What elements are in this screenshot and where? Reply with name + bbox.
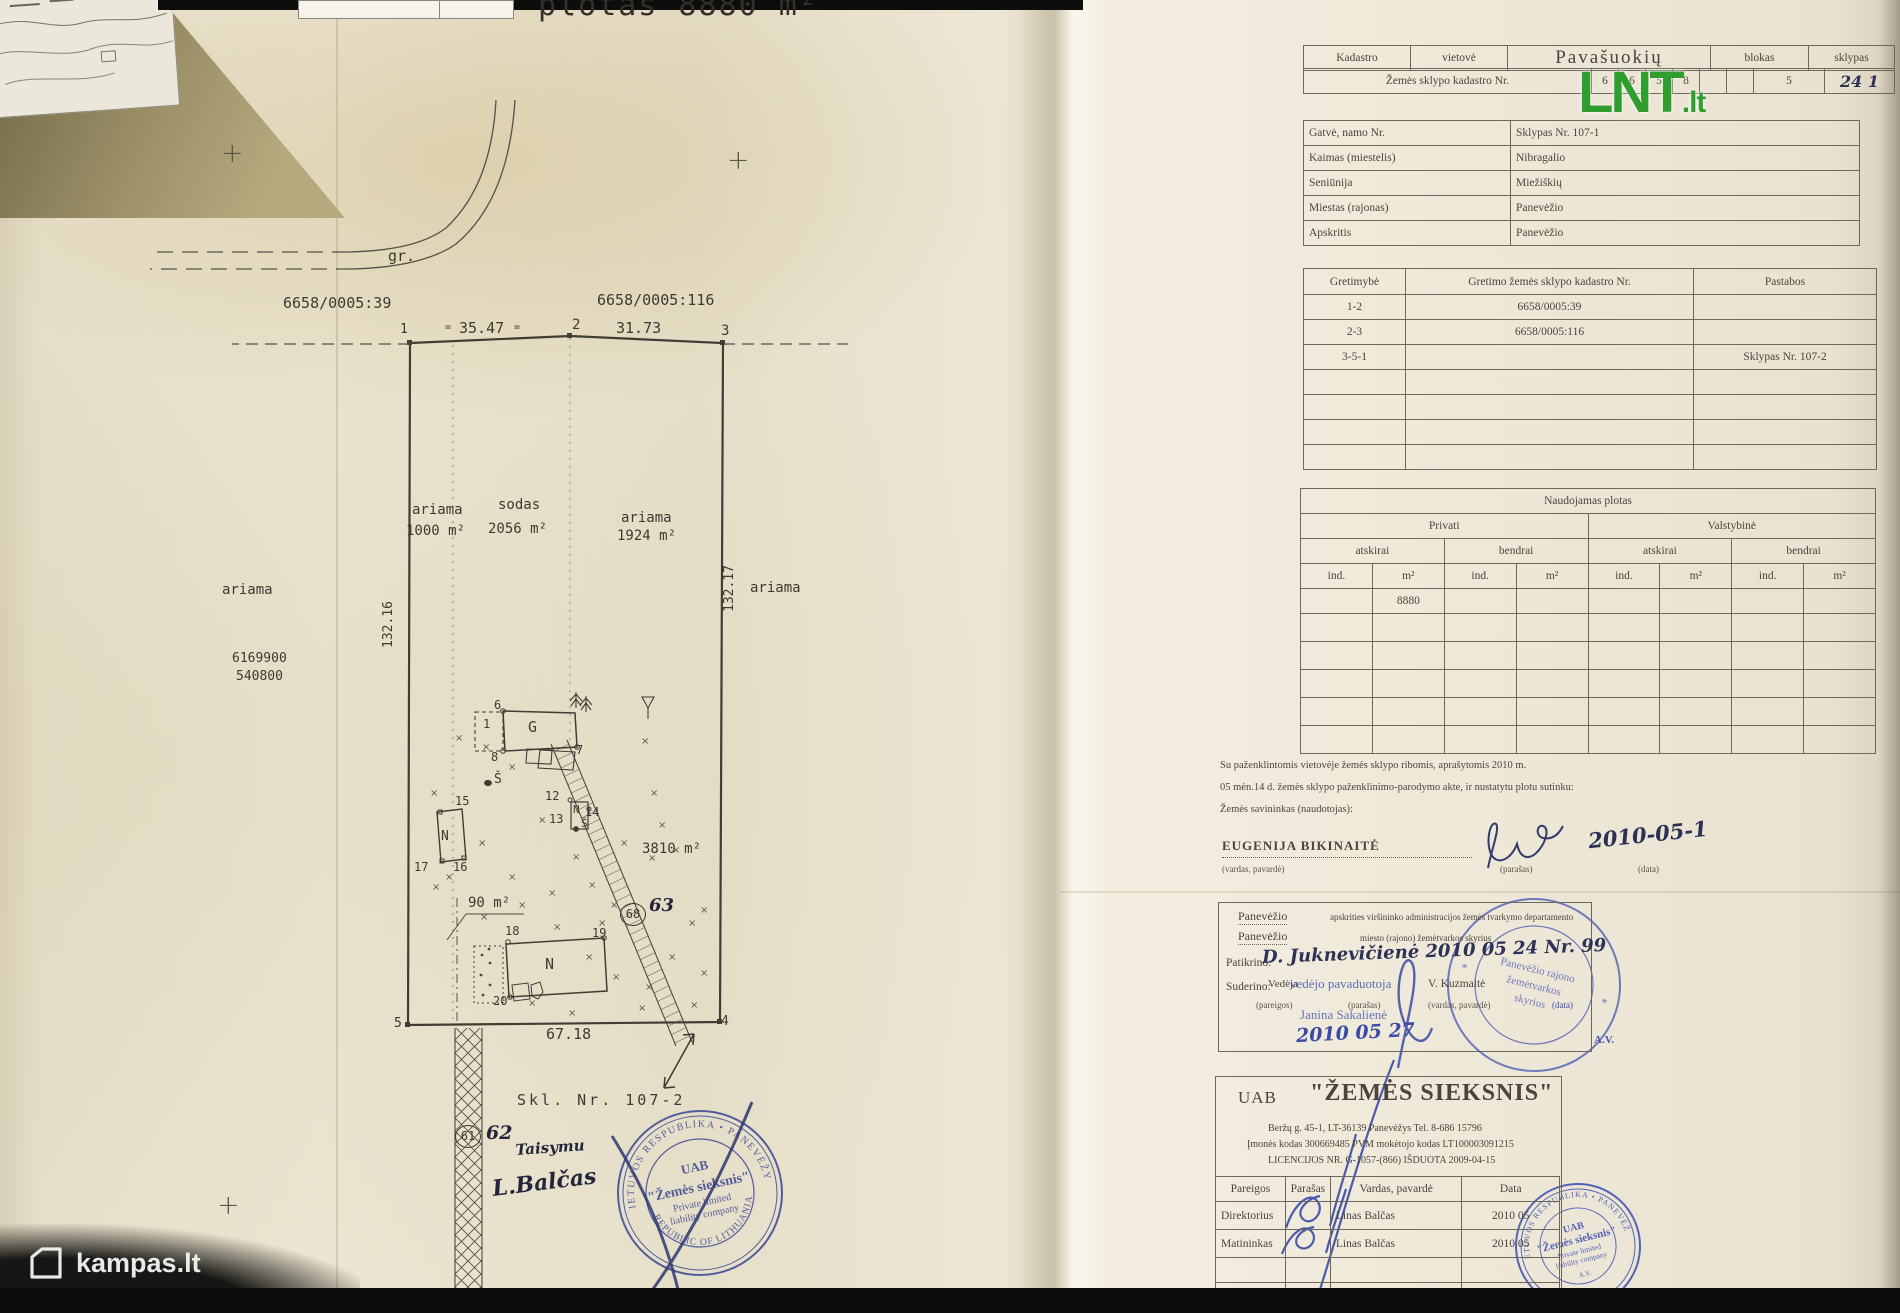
rect-el — [567, 333, 572, 338]
loc-value: Miežiškių — [1511, 171, 1860, 196]
tbody-el: Naudojamas plotas Privati Valstybinė ats… — [1301, 489, 1876, 754]
loc-label: Apskritis — [1304, 221, 1511, 246]
dotted-leader — [1222, 847, 1472, 858]
approval-skyrius-prefix: Panevėžio — [1238, 929, 1287, 945]
rect-el — [405, 1022, 410, 1027]
naud-col: ind. — [1301, 564, 1373, 589]
tree-symbols — [570, 692, 592, 712]
scan-artifact-box — [298, 0, 514, 19]
vietove-label: vietovė — [1411, 46, 1508, 71]
road-lines — [150, 100, 515, 269]
tr-el: 8880 — [1301, 589, 1876, 614]
location-table: Gatvė, namo Nr.Sklypas Nr. 107-1 Kaimas … — [1303, 120, 1860, 246]
empty-row — [1304, 420, 1877, 445]
path-el — [570, 692, 582, 708]
tr-el: ApskritisPanevėžio — [1304, 221, 1860, 246]
tbody-el: Gretimybė Gretimo žemės sklypo kadastro … — [1304, 269, 1877, 470]
empty-cell — [1304, 395, 1406, 420]
company-codes: Įmonės kodas 300669485 PVM mokėtojo koda… — [1247, 1139, 1514, 1150]
consent-line2: 05 mėn.14 d. žemės sklypo paženklinimo-p… — [1220, 782, 1574, 793]
comp-sig — [1285, 1230, 1330, 1258]
naud-col: m² — [1372, 564, 1444, 589]
polygon-el — [512, 983, 530, 1001]
photo-bottom-edge — [0, 1288, 1900, 1313]
naud-col: m² — [1804, 564, 1876, 589]
approval-dept: apskrities viršininko administracijos že… — [1330, 912, 1573, 922]
comp-name: Linas Balčas — [1330, 1230, 1462, 1258]
empty-row — [1304, 395, 1877, 420]
naud-cell — [1301, 589, 1373, 614]
empty-cell — [1444, 670, 1516, 698]
empty-cell — [1301, 642, 1373, 670]
empty-cell — [1804, 670, 1876, 698]
empty-cell — [1301, 726, 1373, 754]
cap-data: (data) — [1552, 1000, 1573, 1010]
empty-cell — [1444, 642, 1516, 670]
empty-cell — [1660, 726, 1732, 754]
empty-cell — [1588, 698, 1660, 726]
comp-role: Matininkas — [1216, 1230, 1286, 1258]
empty-cell — [1804, 614, 1876, 642]
empty-cell — [1372, 642, 1444, 670]
tr-el: 3-5-1Sklypas Nr. 107-2 — [1304, 345, 1877, 370]
naud-cell — [1444, 589, 1516, 614]
empty-cell — [1372, 670, 1444, 698]
gret-cell: Sklypas Nr. 107-2 — [1694, 345, 1877, 370]
cap-vardas: (vardas, pavardė) — [1428, 1000, 1490, 1010]
path-el — [551, 744, 676, 1046]
naud-cell — [1732, 589, 1804, 614]
circle-el — [489, 962, 492, 965]
naud-col: ind. — [1444, 564, 1516, 589]
empty-row — [1301, 642, 1876, 670]
comp-header: Vardas, pavardė — [1330, 1177, 1462, 1202]
sklypas-label: sklypas — [1809, 46, 1895, 71]
scanned-cadastral-document: LIETUVOS RESPUBLIKA • PANEVĖŽYS REPUBLIC… — [0, 0, 1900, 1313]
empty-row — [1216, 1258, 1560, 1283]
comp-date: 2010 05 — [1462, 1230, 1560, 1258]
gretimybe-table: Gretimybė Gretimo žemės sklypo kadastro … — [1303, 268, 1877, 470]
div-el — [439, 1, 440, 18]
text-el: A.V. — [1578, 1269, 1593, 1280]
empty-cell — [1304, 420, 1406, 445]
empty-cell — [1406, 395, 1694, 420]
owner-caption: (vardas, pavardė) — [1222, 864, 1284, 874]
blokas-label: blokas — [1711, 46, 1809, 71]
cap-pareigos: (pareigos) — [1256, 1000, 1292, 1010]
ellipse-el — [485, 780, 492, 785]
company-address: Beržų g. 45-1, LT-36139 Panevėžys Tel. 8… — [1268, 1123, 1482, 1134]
naud-sub: bendrai — [1732, 539, 1876, 564]
empty-cell — [1588, 726, 1660, 754]
naud-col: m² — [1660, 564, 1732, 589]
naud-valstybine: Valstybinė — [1588, 514, 1876, 539]
geodetic-mark — [642, 697, 654, 719]
tr-el: Kaimas (miestelis)Nibragalio — [1304, 146, 1860, 171]
empty-cell — [1588, 614, 1660, 642]
empty-cell — [1660, 614, 1732, 642]
empty-row — [1304, 370, 1877, 395]
text-el: UAB — [680, 1157, 710, 1177]
plot-boundary — [408, 336, 723, 1025]
kampas-logo-text: kampas.lt — [76, 1248, 201, 1279]
tr-el: Naudojamas plotas — [1301, 489, 1876, 514]
empty-cell — [1588, 670, 1660, 698]
gret-cell: 6658/0005:39 — [1406, 295, 1694, 320]
empty-cell — [1304, 445, 1406, 470]
naud-cell — [1516, 589, 1588, 614]
company-round-stamp-map: LIETUVOS RESPUBLIKA • PANEVĖŽYS REPUBLIC… — [603, 1096, 798, 1291]
landuse-separators — [453, 338, 570, 1024]
tr-el: ind.m² ind.m² ind.m² ind.m² — [1301, 564, 1876, 589]
empty-cell — [1516, 642, 1588, 670]
tr-el: Gretimybė Gretimo žemės sklypo kadastro … — [1304, 269, 1877, 295]
consent-line3: Žemės savininkas (naudotojas): — [1220, 804, 1353, 815]
empty-cell — [1804, 698, 1876, 726]
approval-dept-prefix: Panevėžio — [1238, 909, 1287, 925]
comp-header: Data — [1462, 1177, 1560, 1202]
tr-el: 1-26658/0005:39 — [1304, 295, 1877, 320]
digit-cell — [1727, 69, 1754, 94]
naud-area-value: 8880 — [1372, 589, 1444, 614]
sig-caption: (parašas) — [1500, 864, 1532, 874]
empty-cell — [1732, 642, 1804, 670]
empty-cell — [1285, 1258, 1330, 1283]
empty-cell — [1694, 445, 1877, 470]
path-el — [580, 696, 592, 712]
gret-cell: 6658/0005:116 — [1406, 320, 1694, 345]
kampas-logo-icon — [26, 1243, 66, 1283]
driveway-band-hatch — [551, 740, 692, 1046]
company-name: "ŽEMĖS SIEKSNIS" — [1310, 1080, 1553, 1107]
loc-value: Panevėžio — [1511, 221, 1860, 246]
empty-cell — [1694, 395, 1877, 420]
circle-el — [489, 984, 492, 987]
polygon-el — [642, 697, 654, 708]
comp-date: 2010 05 — [1462, 1202, 1560, 1230]
empty-cell — [1732, 726, 1804, 754]
circle-el — [574, 827, 579, 832]
stamp-role-text: vedėjo pavaduotoja — [1290, 976, 1391, 992]
empty-row — [1301, 698, 1876, 726]
comp-header: Parašas — [1285, 1177, 1330, 1202]
tr-el: Privati Valstybinė — [1301, 514, 1876, 539]
empty-cell — [1406, 445, 1694, 470]
kadastro-nr-label: Žemės sklypo kadastro Nr. — [1304, 69, 1592, 94]
naud-sub: atskirai — [1588, 539, 1732, 564]
naud-col: ind. — [1732, 564, 1804, 589]
empty-cell — [1588, 642, 1660, 670]
wood-building-dots — [480, 948, 492, 997]
buildings — [437, 709, 607, 1003]
gret-header: Gretimybė — [1304, 269, 1406, 295]
date-caption: (data) — [1638, 864, 1659, 874]
naud-cell — [1588, 589, 1660, 614]
blokas-value: 5 — [1754, 69, 1825, 94]
empty-cell — [1804, 642, 1876, 670]
polygon-el — [506, 938, 607, 997]
naud-sub: bendrai — [1444, 539, 1588, 564]
tr-el: Matininkas Linas Balčas 2010 05 — [1216, 1230, 1560, 1258]
gret-cell: 3-5-1 — [1304, 345, 1406, 370]
empty-cell — [1516, 726, 1588, 754]
empty-cell — [1301, 670, 1373, 698]
gret-header: Gretimo žemės sklypo kadastro Nr. — [1406, 269, 1694, 295]
empty-cell — [1301, 698, 1373, 726]
loc-label: Seniūnija — [1304, 171, 1511, 196]
av-mark: A.V. — [1594, 1034, 1614, 1046]
uab-label: UAB — [1238, 1088, 1277, 1108]
empty-cell — [1660, 698, 1732, 726]
kadastro-label: Kadastro — [1304, 46, 1411, 71]
naud-col: m² — [1516, 564, 1588, 589]
rect-el — [475, 712, 503, 751]
circle-el — [568, 798, 572, 802]
consent-line1: Su paženklintomis vietovėje žemės sklypo… — [1220, 760, 1526, 771]
loc-label: Miestas (rajonas) — [1304, 196, 1511, 221]
tr-el: Direktorius Linas Balčas 2010 05 — [1216, 1202, 1560, 1230]
empty-cell — [1372, 614, 1444, 642]
lnt-watermark: LNT.lt — [1578, 64, 1705, 122]
leader-90m2 — [447, 914, 524, 940]
loc-label: Gatvė, namo Nr. — [1304, 121, 1511, 146]
empty-cell — [1444, 614, 1516, 642]
tr-el: SeniūnijaMiežiškių — [1304, 171, 1860, 196]
empty-cell — [1732, 670, 1804, 698]
path-el — [447, 914, 524, 940]
comp-role: Direktorius — [1216, 1202, 1286, 1230]
tbody-el: Gatvė, namo Nr.Sklypas Nr. 107-1 Kaimas … — [1304, 121, 1860, 246]
empty-cell — [1372, 698, 1444, 726]
empty-cell — [1694, 370, 1877, 395]
empty-cell — [1406, 370, 1694, 395]
empty-cell — [1804, 726, 1876, 754]
empty-cell — [1444, 698, 1516, 726]
empty-row — [1301, 670, 1876, 698]
empty-cell — [1444, 726, 1516, 754]
rect-el — [717, 1019, 722, 1024]
tr-el: Pareigos Parašas Vardas, pavardė Data — [1216, 1177, 1560, 1202]
empty-cell — [1372, 726, 1444, 754]
naud-cell — [1804, 589, 1876, 614]
empty-cell — [1216, 1258, 1286, 1283]
empty-cell — [1304, 370, 1406, 395]
loc-value: Panevėžio — [1511, 196, 1860, 221]
naud-cell — [1660, 589, 1732, 614]
naudojamas-plotas-table: Naudojamas plotas Privati Valstybinė ats… — [1300, 488, 1876, 754]
gret-cell — [1694, 295, 1877, 320]
naud-col: ind. — [1588, 564, 1660, 589]
suderino-label: Suderino: — [1226, 981, 1271, 993]
empty-cell — [1462, 1258, 1560, 1283]
empty-cell — [1301, 614, 1373, 642]
company-licence: LICENCIJOS NR. G-1057-(866) IŠDUOTA 2009… — [1268, 1155, 1495, 1166]
comp-header: Pareigos — [1216, 1177, 1286, 1202]
empty-cell — [1732, 698, 1804, 726]
path-el — [32, 1249, 60, 1277]
naud-sub: atskirai — [1301, 539, 1445, 564]
circle-el — [482, 994, 485, 997]
empty-cell — [1516, 614, 1588, 642]
kampas-watermark: kampas.lt — [26, 1243, 201, 1283]
gret-cell: 2-3 — [1304, 320, 1406, 345]
empty-row — [1301, 726, 1876, 754]
rect-el — [474, 946, 503, 1003]
empty-cell — [1330, 1258, 1462, 1283]
path-el — [567, 740, 692, 1042]
lnt-logo-text: LNT — [1578, 60, 1682, 125]
path-el — [348, 100, 496, 252]
kuzmaite-name: V. Kuzmaitė — [1428, 978, 1485, 990]
circle-el — [488, 948, 491, 951]
empty-cell — [1516, 698, 1588, 726]
naud-privati: Privati — [1301, 514, 1589, 539]
gret-cell: 1-2 — [1304, 295, 1406, 320]
road-strip-hatch — [455, 1028, 482, 1290]
polygon-el — [437, 809, 466, 862]
owner-signature — [1488, 823, 1563, 868]
circle-el — [481, 954, 484, 957]
empty-row — [1301, 614, 1876, 642]
gret-cell — [1406, 345, 1694, 370]
comp-name: Linas Balčas — [1330, 1202, 1462, 1230]
gret-cell — [1694, 320, 1877, 345]
empty-cell — [1660, 670, 1732, 698]
comp-sig — [1285, 1202, 1330, 1230]
empty-cell — [1732, 614, 1804, 642]
span-el: 24 1 — [1840, 72, 1879, 91]
naud-title: Naudojamas plotas — [1301, 489, 1876, 514]
empty-cell — [1406, 420, 1694, 445]
lnt-logo-tld: .lt — [1682, 86, 1706, 119]
loc-value: Nibragalio — [1511, 146, 1860, 171]
empty-cell — [1516, 670, 1588, 698]
empty-cell — [1694, 420, 1877, 445]
tr-el: Miestas (rajonas)Panevėžio — [1304, 196, 1860, 221]
empty-row — [1304, 445, 1877, 470]
sklypas-value: 24 1 — [1825, 69, 1895, 94]
path-el — [352, 100, 515, 269]
tr-el: 2-36658/0005:116 — [1304, 320, 1877, 345]
loc-label: Kaimas (miestelis) — [1304, 146, 1511, 171]
loc-value: Sklypas Nr. 107-1 — [1511, 121, 1860, 146]
text-el: * — [1599, 995, 1608, 1010]
gret-header: Pastabos — [1694, 269, 1877, 295]
circle-el — [480, 974, 483, 977]
polygon-el — [531, 982, 543, 999]
empty-cell — [1660, 642, 1732, 670]
tr-el: atskirai bendrai atskirai bendrai — [1301, 539, 1876, 564]
